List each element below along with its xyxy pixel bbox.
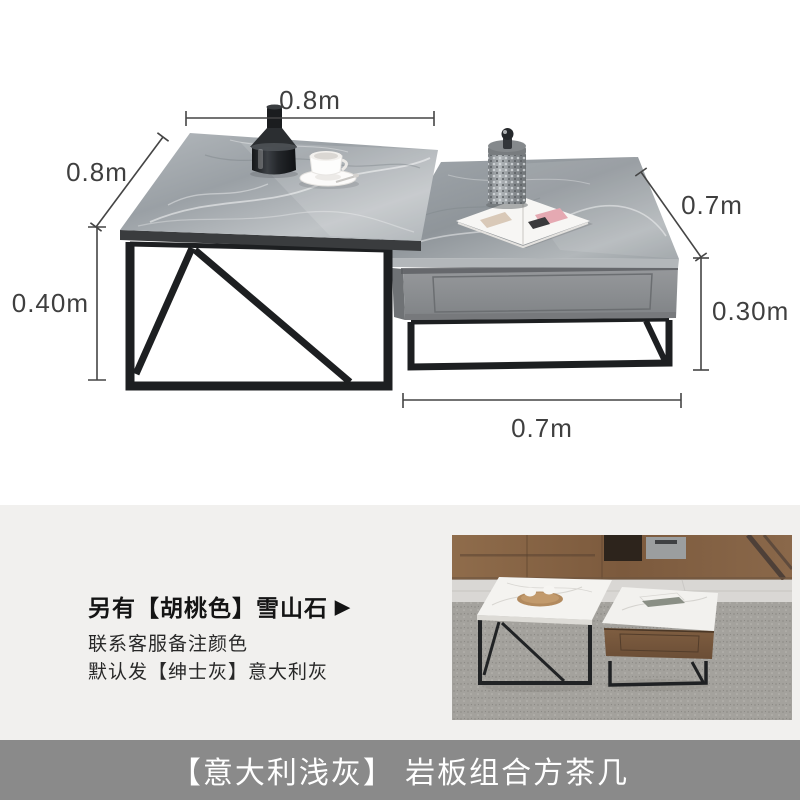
big-coffee-table [120, 105, 438, 387]
table-dimension-render: 0.8m 0.8m 0.40m 0.7m 0.30m 0.7m [0, 0, 800, 505]
alt-color-headline: 另有【胡桃色】雪山石 ▶ [88, 589, 351, 623]
decor-vase [250, 105, 298, 179]
dimension-label-bottom: 0.7m [511, 413, 573, 443]
walnut-variant-render [452, 535, 792, 720]
product-detail-card: 0.8m 0.8m 0.40m 0.7m 0.30m 0.7m 另有【胡桃色】雪… [0, 0, 800, 800]
product-title-banner: 【意大利浅灰】 岩板组合方茶几 [0, 740, 800, 800]
dimension-label-right-depth: 0.7m [681, 190, 743, 220]
product-title: 【意大利浅灰】 岩板组合方茶几 [171, 748, 629, 792]
color-info-panel: 另有【胡桃色】雪山石 ▶ 联系客服备注颜色 默认发【绅士灰】意大利灰 [0, 505, 800, 740]
dimension-label-right-height: 0.30m [712, 296, 789, 326]
arrow-right-icon: ▶ [335, 598, 351, 617]
note-contact-service: 联系客服备注颜色 [88, 629, 248, 656]
dimension-label-left-depth: 0.8m [66, 157, 128, 187]
dimension-label-left-height: 0.40m [12, 288, 89, 318]
alt-color-text: 另有【胡桃色】雪山石 [88, 589, 328, 623]
dim-left-height [88, 227, 106, 380]
note-default-color: 默认发【绅士灰】意大利灰 [88, 657, 328, 684]
main-product-photo: 0.8m 0.8m 0.40m 0.7m 0.30m 0.7m [0, 0, 800, 505]
storage-jar [486, 128, 528, 209]
walnut-variant-photo [452, 535, 792, 720]
dimension-label-top: 0.8m [279, 85, 341, 115]
dim-right-height [693, 258, 709, 370]
dim-bottom-width [403, 393, 681, 408]
